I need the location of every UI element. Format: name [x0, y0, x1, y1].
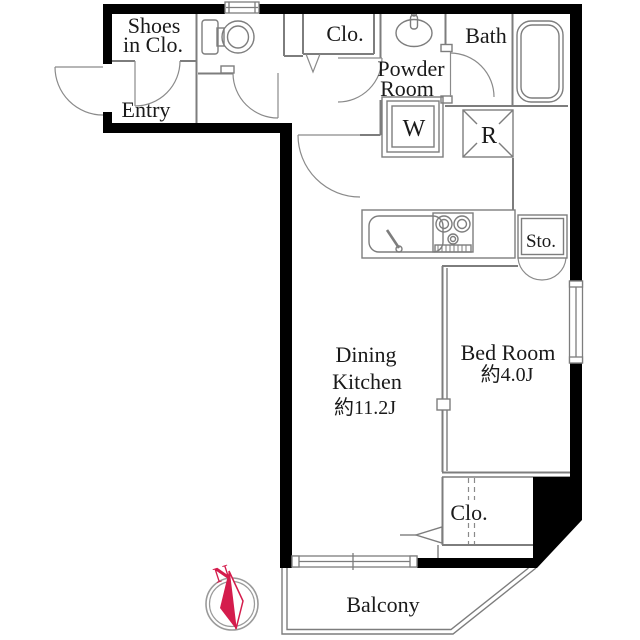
- kitchen-counter: [362, 210, 515, 258]
- bath-label: Bath: [465, 23, 507, 48]
- powder-room-label-2: Room: [380, 76, 434, 101]
- dining-kitchen-label-2: Kitchen: [332, 369, 402, 394]
- toilet-door-icon: [233, 73, 278, 118]
- storage-doors-icon: [518, 258, 566, 280]
- entry-label: Entry: [122, 97, 171, 122]
- dining-kitchen-area: 約11.2J: [334, 396, 396, 419]
- floor-plan: Shoes in Clo. Entry Clo. Powder Room Bat…: [0, 0, 640, 640]
- interior-walls: [112, 14, 570, 558]
- top-window-icon: [225, 2, 259, 13]
- compass: N: [206, 559, 258, 630]
- dining-kitchen-door-icon: [298, 135, 360, 197]
- bath-door-icon: [441, 45, 494, 104]
- closet-bottom-label: Clo.: [450, 500, 487, 525]
- toilet-icon: [202, 20, 254, 73]
- shoes-closet-label-2: in Clo.: [123, 32, 183, 57]
- bed-room-label: Bed Room: [461, 340, 556, 365]
- floor-plan-canvas: Shoes in Clo. Entry Clo. Powder Room Bat…: [0, 0, 640, 640]
- balcony-window-icon: [292, 553, 417, 570]
- closet-top-label: Clo.: [326, 21, 363, 46]
- room-labels: Shoes in Clo. Entry Clo. Powder Room Bat…: [122, 13, 557, 617]
- closet-fold-door-icon: [306, 54, 320, 72]
- fridge-label: R: [481, 123, 497, 149]
- sink-icon: [396, 11, 432, 47]
- north-label: N: [210, 559, 233, 588]
- bed-room-area: 約4.0J: [481, 363, 534, 386]
- powder-room-door-icon: [338, 58, 382, 102]
- entry-door-icon: [55, 67, 103, 115]
- storage-label: Sto.: [526, 231, 556, 252]
- exterior-walls: [103, 4, 582, 568]
- sliding-door-notch-icon: [437, 399, 450, 410]
- washer-label: W: [403, 116, 426, 142]
- balcony-label: Balcony: [346, 592, 419, 617]
- bathtub-icon: [517, 21, 563, 102]
- bedroom-window-icon: [570, 281, 583, 363]
- dining-kitchen-label: Dining: [335, 342, 396, 367]
